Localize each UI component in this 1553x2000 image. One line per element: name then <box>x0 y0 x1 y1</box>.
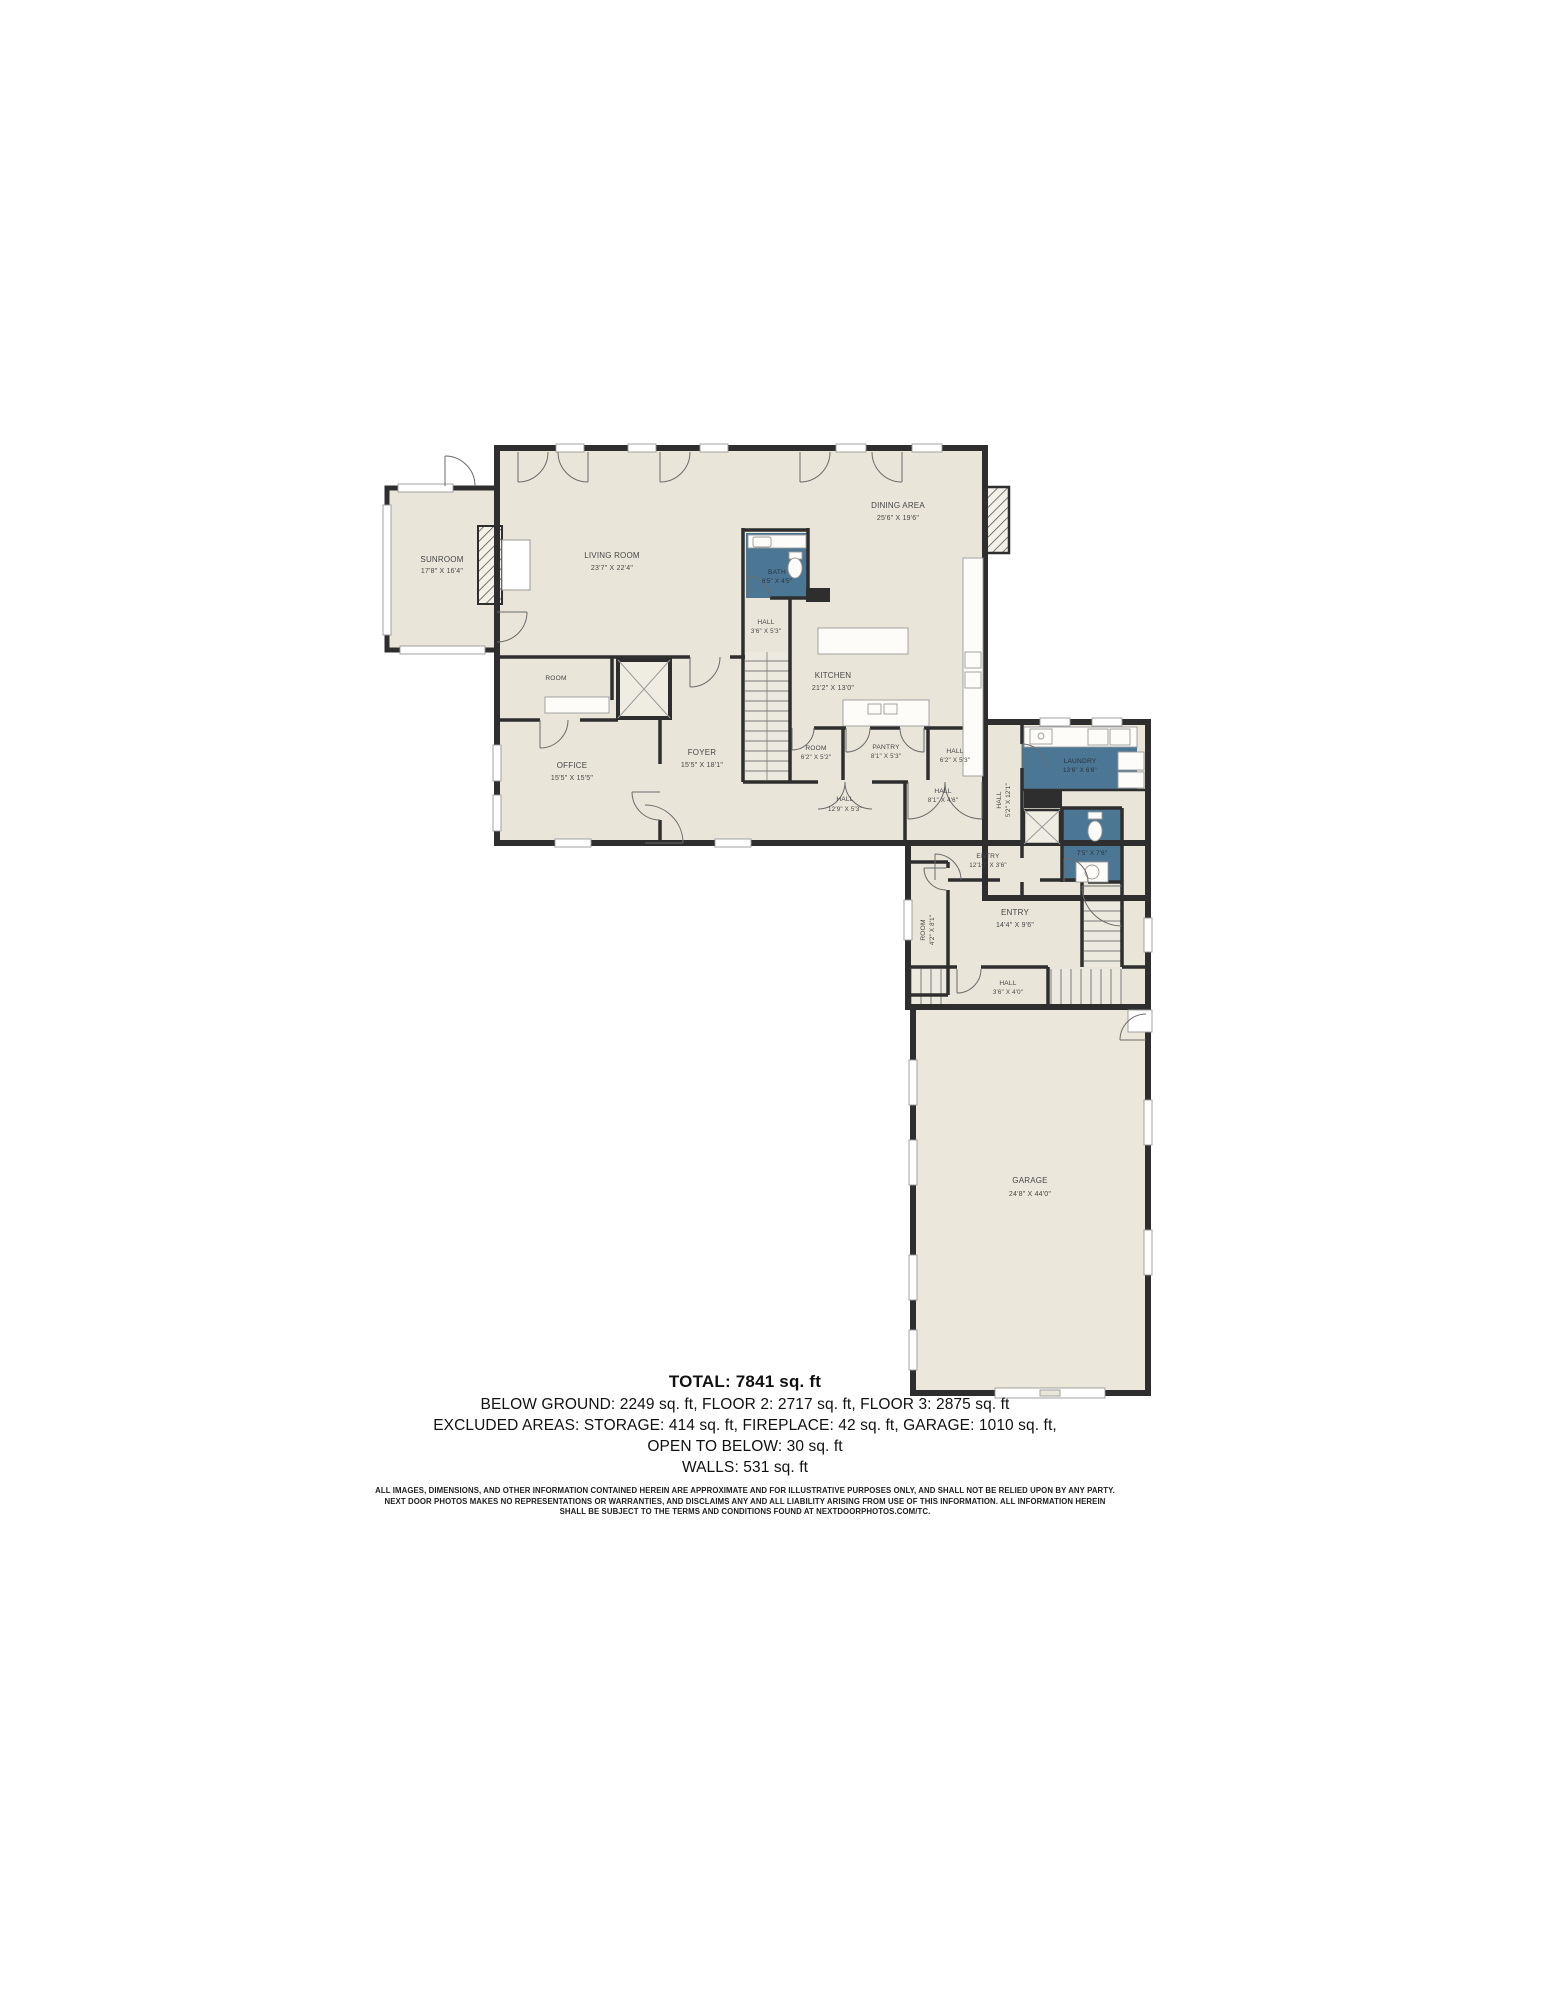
elevator <box>618 660 670 718</box>
svg-text:HALL: HALL <box>999 980 1016 987</box>
svg-text:6'5" X 4'5": 6'5" X 4'5" <box>762 578 792 585</box>
open-to-below: OPEN TO BELOW: 30 sq. ft <box>300 1438 1190 1456</box>
disclaimer: ALL IMAGES, DIMENSIONS, AND OTHER INFORM… <box>300 1486 1190 1518</box>
svg-text:3'6" X 4'0": 3'6" X 4'0" <box>993 989 1023 996</box>
toilet-bowl <box>788 558 802 578</box>
svg-text:ROOM: ROOM <box>920 919 927 940</box>
disclaimer-line-3: SHALL BE SUBJECT TO THE TERMS AND CONDIT… <box>300 1507 1190 1518</box>
svg-text:HALL: HALL <box>934 788 951 795</box>
svg-text:23'7" X 22'4": 23'7" X 22'4" <box>591 565 633 572</box>
svg-text:6'2" X 5'3": 6'2" X 5'3" <box>940 757 970 764</box>
x-closet <box>1024 810 1060 844</box>
svg-text:8'1" X 4'6": 8'1" X 4'6" <box>928 797 958 804</box>
svg-text:15'5" X 18'1": 15'5" X 18'1" <box>681 762 723 769</box>
floor-areas: BELOW GROUND: 2249 sq. ft, FLOOR 2: 2717… <box>300 1396 1190 1414</box>
svg-text:PANTRY: PANTRY <box>872 744 900 751</box>
svg-text:4'2" X 8'1": 4'2" X 8'1" <box>929 915 936 945</box>
side-steps <box>910 969 948 1005</box>
svg-text:KITCHEN: KITCHEN <box>815 671 852 680</box>
svg-text:8'1" X 5'3": 8'1" X 5'3" <box>871 753 901 760</box>
svg-text:12'9" X 5'3": 12'9" X 5'3" <box>828 806 862 813</box>
floor-plan: SUNROOM 17'8" X 16'4" LIVING ROOM 23'7" … <box>0 0 1553 2000</box>
page: { "colors": { "floor": "#e9e5d8", "wall"… <box>0 0 1553 2000</box>
svg-text:ROOM: ROOM <box>805 745 826 752</box>
svg-text:24'8" X 44'0": 24'8" X 44'0" <box>1009 1191 1051 1198</box>
svg-text:12'10" X 3'6": 12'10" X 3'6" <box>969 862 1007 869</box>
svg-text:LIVING ROOM: LIVING ROOM <box>584 551 640 560</box>
svg-text:3'6" X 5'3": 3'6" X 5'3" <box>751 628 781 635</box>
svg-text:OFFICE: OFFICE <box>557 761 588 770</box>
closet <box>545 697 609 713</box>
svg-text:LAUNDRY: LAUNDRY <box>1064 758 1097 765</box>
toilet-bowl <box>1088 821 1102 841</box>
svg-text:HALL: HALL <box>996 791 1003 808</box>
dryer <box>1110 729 1130 745</box>
washer <box>1088 729 1108 745</box>
svg-text:ROOM: ROOM <box>545 675 566 682</box>
svg-text:ENTRY: ENTRY <box>1001 908 1029 917</box>
svg-text:7'5" X 7'6": 7'5" X 7'6" <box>1077 850 1107 857</box>
excluded-areas: EXCLUDED AREAS: STORAGE: 414 sq. ft, FIR… <box>300 1417 1190 1435</box>
fireplace-hatch <box>985 487 1009 553</box>
area-summary: TOTAL: 7841 sq. ft BELOW GROUND: 2249 sq… <box>300 1372 1190 1518</box>
svg-text:21'2" X 13'0": 21'2" X 13'0" <box>812 685 854 692</box>
svg-text:DINING AREA: DINING AREA <box>871 501 925 510</box>
svg-text:GARAGE: GARAGE <box>1012 1176 1047 1185</box>
disclaimer-line-1: ALL IMAGES, DIMENSIONS, AND OTHER INFORM… <box>300 1486 1190 1497</box>
disclaimer-line-2: NEXT DOOR PHOTOS MAKES NO REPRESENTATION… <box>300 1497 1190 1508</box>
svg-text:ENTRY: ENTRY <box>976 853 1000 860</box>
svg-text:SUNROOM: SUNROOM <box>420 555 463 564</box>
svg-text:FOYER: FOYER <box>688 748 717 757</box>
walls-area: WALLS: 531 sq. ft <box>300 1459 1190 1477</box>
svg-text:BATH: BATH <box>768 569 786 576</box>
svg-text:HALL: HALL <box>757 619 774 626</box>
svg-text:25'6" X 19'6": 25'6" X 19'6" <box>877 515 919 522</box>
svg-text:14'4" X 9'6": 14'4" X 9'6" <box>996 922 1034 929</box>
label-room-1: ROOM <box>545 675 566 682</box>
svg-text:HALL: HALL <box>946 748 963 755</box>
svg-text:5'2" X 12'1": 5'2" X 12'1" <box>1005 783 1012 817</box>
toilet-tank <box>1088 812 1102 819</box>
svg-text:6'2" X 5'2": 6'2" X 5'2" <box>801 754 831 761</box>
kitchen-island <box>818 628 908 654</box>
total-area: TOTAL: 7841 sq. ft <box>300 1372 1190 1392</box>
svg-text:17'8" X 16'4": 17'8" X 16'4" <box>421 568 463 575</box>
svg-text:BATH: BATH <box>1083 841 1101 848</box>
svg-text:HALL: HALL <box>836 796 853 803</box>
svg-text:13'6" X 6'6": 13'6" X 6'6" <box>1063 767 1097 774</box>
garage-stairs <box>1048 969 1122 1005</box>
garage-side-door <box>1128 1010 1152 1032</box>
svg-text:15'5" X 15'5": 15'5" X 15'5" <box>551 775 593 782</box>
